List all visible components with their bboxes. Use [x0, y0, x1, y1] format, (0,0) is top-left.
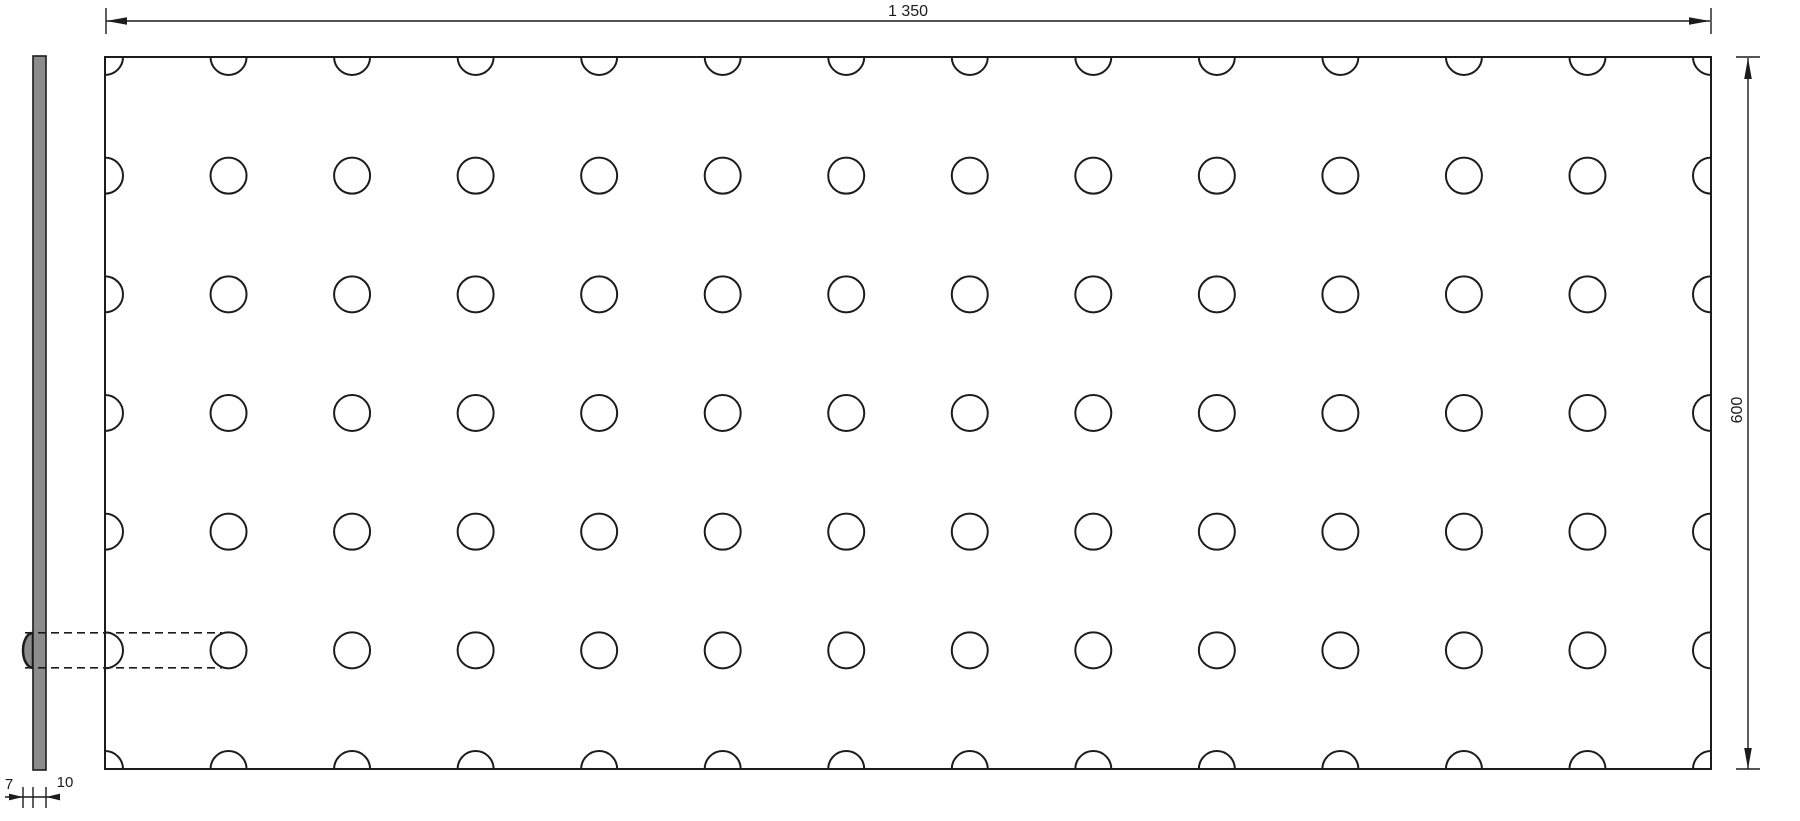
arrow-right-icon: [1689, 17, 1710, 25]
technical-drawing: 1 350 600 7 10: [0, 0, 1800, 821]
panel-outline: [105, 57, 1711, 769]
dim-thickness-label: 10: [57, 774, 74, 791]
arrow-up-icon: [1744, 58, 1752, 79]
dim-width-label: 1 350: [888, 3, 928, 20]
drawing-geometry: [5, 8, 1760, 808]
arrow-right-icon: [9, 794, 23, 801]
arrow-left-icon: [46, 794, 60, 801]
emboss-bump: [23, 633, 33, 668]
side-view: [23, 56, 46, 770]
dim-height-label: 600: [1729, 397, 1746, 424]
side-view-strip: [33, 56, 46, 770]
drawing-page: { "drawing": { "type": "technical_drawin…: [0, 0, 1800, 821]
arrow-down-icon: [1744, 748, 1752, 769]
dim-emboss-depth-label: 7: [5, 776, 13, 793]
arrow-left-icon: [106, 17, 127, 25]
